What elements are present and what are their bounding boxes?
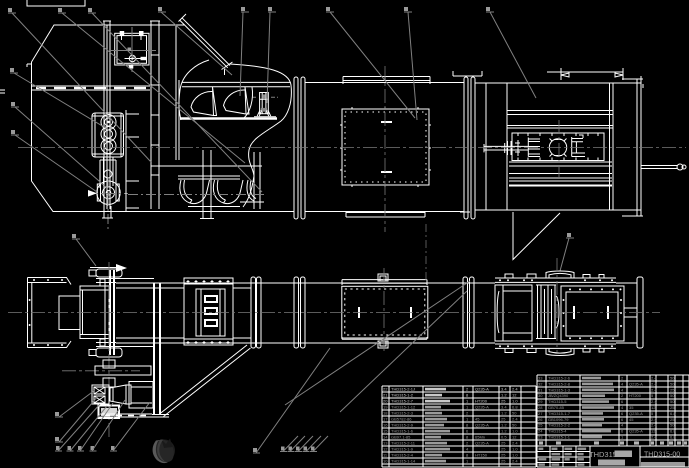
svg-text:THD315-2-2: THD315-2-2 [548,423,571,428]
svg-text:2.4: 2.4 [651,381,657,386]
svg-text:THD315-00: THD315-00 [644,452,680,459]
svg-text:10: 10 [383,459,388,464]
svg-text:21: 21 [383,393,388,398]
svg-text:2.4: 2.4 [651,423,657,428]
svg-text:THD315-1-3: THD315-1-3 [548,387,571,392]
svg-text:1.0: 1.0 [512,429,518,434]
svg-text:THD315-1-1: THD315-1-1 [548,435,571,440]
svg-text:GB1096-79: GB1096-79 [548,417,569,422]
svg-text:HT150: HT150 [475,453,488,458]
svg-text:32: 32 [538,381,543,386]
svg-text:65Mn: 65Mn [475,435,485,440]
svg-text:13: 13 [383,441,388,446]
svg-text:33: 33 [538,376,543,381]
svg-text:2.4: 2.4 [512,387,518,392]
svg-text:50: 50 [512,411,517,416]
svg-text:THD315-5: THD315-5 [548,399,567,404]
svg-text:HT200: HT200 [629,393,642,398]
svg-text:2.4: 2.4 [512,459,518,464]
svg-text:2.4: 2.4 [651,417,657,422]
svg-text:50: 50 [670,399,675,404]
svg-text:23: 23 [538,435,543,440]
svg-text:GB97.1-85: GB97.1-85 [391,435,411,440]
svg-text:12: 12 [651,429,656,434]
svg-text:0.5: 0.5 [501,435,507,440]
svg-text:Q235-A: Q235-A [475,387,489,392]
svg-text:50: 50 [670,423,675,428]
svg-text:25: 25 [501,399,506,404]
svg-text:26: 26 [538,417,543,422]
svg-text:12: 12 [383,447,388,452]
svg-text:THD315-4: THD315-4 [548,429,567,434]
svg-text:15: 15 [383,429,388,434]
svg-text:27: 27 [538,411,543,416]
svg-text:50: 50 [670,393,675,398]
svg-text:2.4: 2.4 [651,376,657,381]
svg-text:25: 25 [670,387,675,392]
svg-text:12: 12 [651,405,656,410]
svg-text:1.0: 1.0 [512,447,518,452]
svg-text:Q235-A: Q235-A [475,423,489,428]
svg-text:3.4: 3.4 [501,405,507,410]
svg-text:25: 25 [501,459,506,464]
svg-text:GB70-85: GB70-85 [548,405,565,410]
svg-text:1.0: 1.0 [512,453,518,458]
svg-text:28: 28 [538,405,543,410]
svg-text:19: 19 [383,405,388,410]
svg-text:45: 45 [475,417,480,422]
svg-text:2.4: 2.4 [512,441,518,446]
svg-text:24: 24 [538,429,543,434]
svg-text:2.4: 2.4 [651,387,657,392]
svg-text:12: 12 [512,393,517,398]
svg-text:30: 30 [538,393,543,398]
svg-text:25: 25 [670,405,675,410]
svg-text:50: 50 [670,376,675,381]
svg-text:25: 25 [501,453,506,458]
svg-text:Q235-A: Q235-A [475,405,489,410]
svg-text:25: 25 [501,417,506,422]
svg-text:25: 25 [501,447,506,452]
svg-text:THD315-1-7: THD315-1-7 [548,411,571,416]
svg-text:50: 50 [670,381,675,386]
svg-text:THD315-2-6: THD315-2-6 [548,376,571,381]
svg-text:3.4: 3.4 [501,387,507,392]
svg-text:45: 45 [629,417,634,422]
svg-text:6.8: 6.8 [670,411,676,416]
svg-text:18: 18 [383,411,388,416]
svg-text:THD315: THD315 [589,450,617,459]
svg-text:THD315-2-7: THD315-2-7 [391,399,414,404]
svg-text:JB/ZQ4390: JB/ZQ4390 [548,393,569,398]
svg-text:THD315-2-4: THD315-2-4 [391,453,414,458]
svg-text:Q235-A: Q235-A [629,429,643,434]
svg-text:THD315-1-6: THD315-1-6 [391,429,414,434]
svg-text:20: 20 [383,399,388,404]
svg-text:THD315-1-12: THD315-1-12 [391,405,416,410]
svg-text:1.2: 1.2 [501,411,507,416]
svg-text:17: 17 [383,417,388,422]
svg-text:25: 25 [538,423,543,428]
svg-text:1.0: 1.0 [512,399,518,404]
svg-text:THD315-1-2: THD315-1-2 [391,393,414,398]
svg-text:35: 35 [629,405,634,410]
svg-text:50: 50 [512,423,517,428]
svg-text:14: 14 [383,435,388,440]
svg-text:HT200: HT200 [475,399,488,404]
svg-text:6.8: 6.8 [512,405,518,410]
svg-text:1.2: 1.2 [501,393,507,398]
svg-text:25: 25 [670,417,675,422]
svg-text:THD315-2-9: THD315-2-9 [391,423,414,428]
svg-text:Q235-A: Q235-A [629,381,643,386]
svg-text:2.4: 2.4 [651,399,657,404]
svg-text:Q235-A: Q235-A [629,411,643,416]
svg-text:THD315-1-14: THD315-1-14 [391,459,416,464]
svg-text:THD315-2-11: THD315-2-11 [391,441,416,446]
svg-text:1.2: 1.2 [501,423,507,428]
svg-text:1.2: 1.2 [501,429,507,434]
svg-text:THD315-2-8: THD315-2-8 [548,381,571,386]
svg-text:22: 22 [383,387,388,392]
svg-text:THD315-2-1J: THD315-2-1J [391,387,415,392]
svg-text:25: 25 [501,441,506,446]
svg-text:THD315-1-9: THD315-1-9 [391,447,414,452]
svg-text:31: 31 [538,387,543,392]
svg-text:2.4: 2.4 [651,435,657,440]
svg-text:THD315-2-3: THD315-2-3 [391,411,414,416]
svg-text:6.8: 6.8 [670,429,676,434]
svg-text:GB5782-86: GB5782-86 [391,417,412,422]
svg-text:16: 16 [383,423,388,428]
svg-text:12: 12 [512,435,517,440]
svg-text:29: 29 [538,399,543,404]
svg-text:Q235-A: Q235-A [475,441,489,446]
svg-text:6.8: 6.8 [670,435,676,440]
svg-text:2.4: 2.4 [512,417,518,422]
